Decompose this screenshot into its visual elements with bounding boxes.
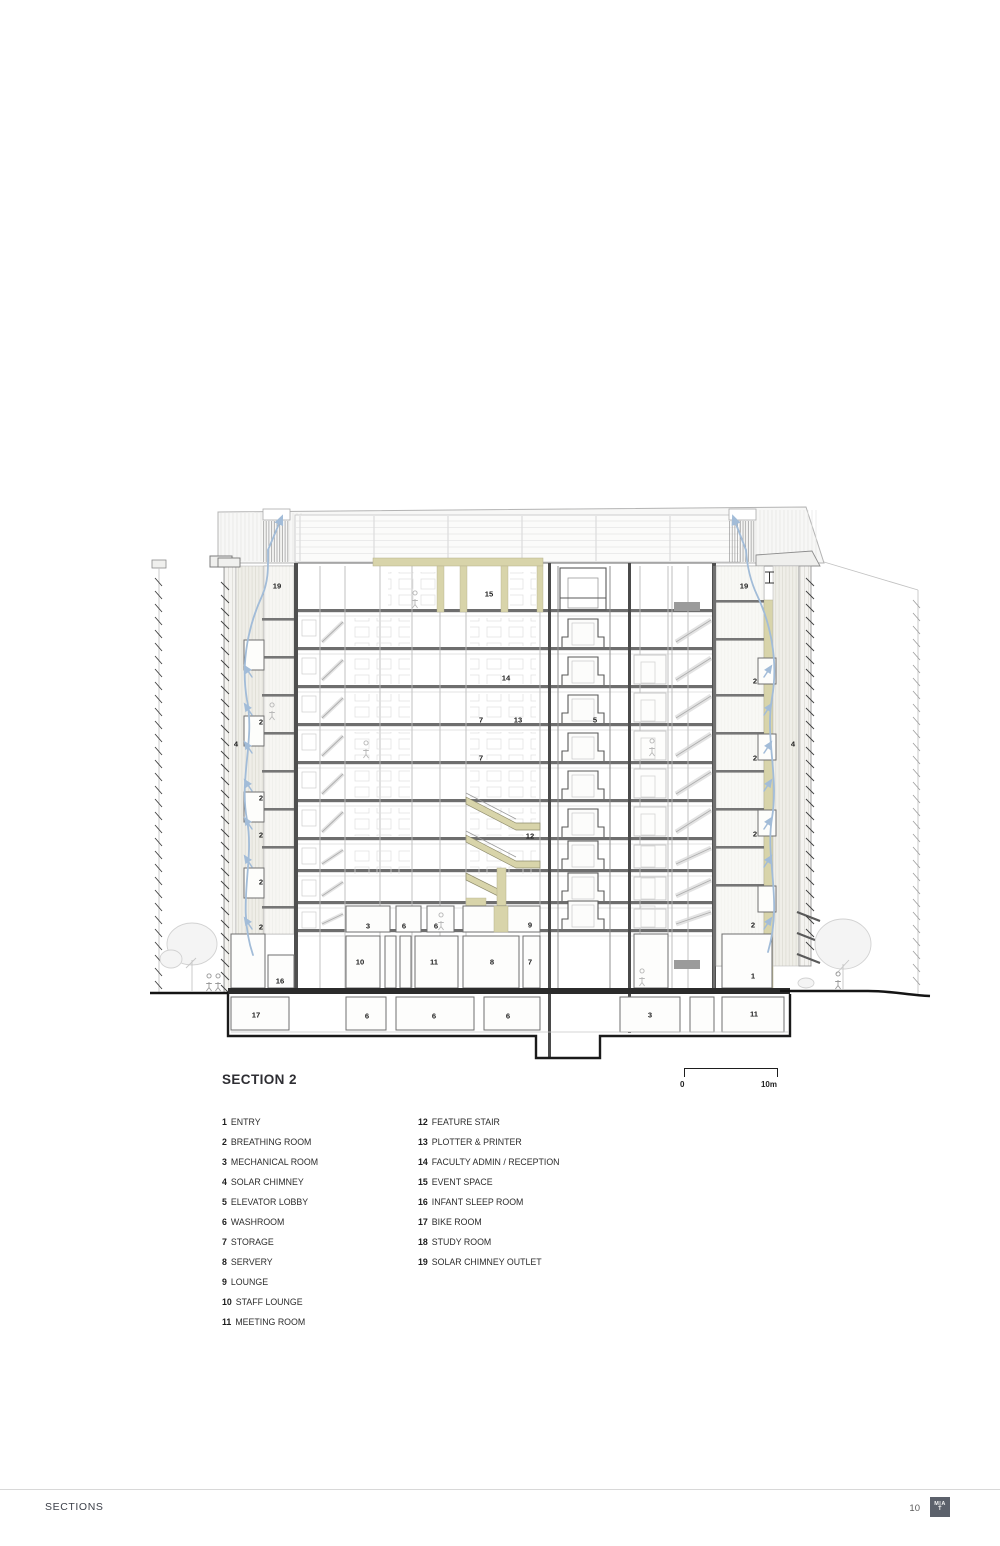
legend-item-number: 15 — [418, 1177, 428, 1187]
legend-item-label: WASHROOM — [231, 1217, 284, 1227]
legend-item-label: STORAGE — [231, 1237, 274, 1247]
legend-item: 12FEATURE STAIR — [418, 1112, 560, 1132]
room-label: 14 — [502, 674, 511, 683]
firm-logo: M|A T — [930, 1497, 950, 1517]
room-label: 7 — [528, 958, 532, 967]
legend-item-label: EVENT SPACE — [432, 1177, 493, 1187]
legend-item: 18STUDY ROOM — [418, 1232, 560, 1252]
solar-chimney-right — [712, 563, 820, 993]
room-label: 6 — [402, 922, 406, 931]
legend-item: 10STAFF LOUNGE — [222, 1292, 318, 1312]
legend-item: 13PLOTTER & PRINTER — [418, 1132, 560, 1152]
legend-item-number: 19 — [418, 1257, 428, 1267]
room-label: 17 — [252, 1011, 260, 1020]
room-label: 10 — [356, 958, 364, 967]
room-label: 6 — [506, 1012, 510, 1021]
legend-item-label: FEATURE STAIR — [432, 1117, 500, 1127]
legend-item: 1ENTRY — [222, 1112, 318, 1132]
room-label: 11 — [750, 1010, 759, 1019]
scale-end-label: 10m — [761, 1080, 777, 1089]
legend-item: 11MEETING ROOM — [222, 1312, 318, 1332]
room-label: 12 — [526, 832, 534, 841]
legend-item-label: MEETING ROOM — [235, 1317, 305, 1327]
legend-item-number: 11 — [222, 1317, 231, 1327]
legend-item: 17BIKE ROOM — [418, 1212, 560, 1232]
legend-item-label: INFANT SLEEP ROOM — [432, 1197, 524, 1207]
legend-item-number: 6 — [222, 1217, 227, 1227]
legend-item-number: 14 — [418, 1157, 428, 1167]
chimney-outlet-left — [263, 509, 290, 520]
legend-item-number: 7 — [222, 1237, 227, 1247]
room-label: 9 — [528, 921, 532, 930]
room-label: 2 — [259, 923, 263, 932]
roof — [210, 507, 918, 590]
footer-divider — [0, 1489, 1000, 1490]
room-label: 2 — [753, 830, 757, 839]
scale-bar — [684, 1068, 778, 1077]
room-label: 3 — [366, 922, 370, 931]
legend-item-label: MECHANICAL ROOM — [231, 1157, 318, 1167]
legend-item: 8SERVERY — [222, 1252, 318, 1272]
legend-item: 2BREATHING ROOM — [222, 1132, 318, 1152]
room-label: 3 — [648, 1011, 652, 1020]
room-label: 6 — [365, 1012, 369, 1021]
room-label: 6 — [434, 922, 438, 931]
legend-item-label: ENTRY — [231, 1117, 261, 1127]
legend-item-label: BIKE ROOM — [432, 1217, 482, 1227]
legend-item-number: 10 — [222, 1297, 232, 1307]
room-label: 19 — [740, 582, 748, 591]
room-label: 2 — [259, 718, 263, 727]
legend-item-number: 9 — [222, 1277, 227, 1287]
chimney-outlet-right — [729, 509, 756, 520]
legend-item: 6WASHROOM — [222, 1212, 318, 1232]
legend-item-number: 8 — [222, 1257, 227, 1267]
room-label: 15 — [485, 590, 494, 599]
legend-item: 7STORAGE — [222, 1232, 318, 1252]
legend-item-number: 13 — [418, 1137, 428, 1147]
room-label: 19 — [273, 582, 281, 591]
legend-item-label: LOUNGE — [231, 1277, 268, 1287]
legend-item-number: 17 — [418, 1217, 428, 1227]
footer-section-label: SECTIONS — [45, 1501, 103, 1513]
legend-item: 3MECHANICAL ROOM — [222, 1152, 318, 1172]
tree-left — [160, 923, 217, 992]
clerestory — [295, 515, 740, 562]
legend-item-label: SOLAR CHIMNEY — [231, 1177, 304, 1187]
legend-item-number: 18 — [418, 1237, 428, 1247]
room-label: 2 — [259, 878, 263, 887]
room-label: 2 — [753, 677, 757, 686]
room-label: 11 — [430, 958, 439, 967]
legend-item-label: SOLAR CHIMNEY OUTLET — [432, 1257, 542, 1267]
room-label: 2 — [259, 794, 263, 803]
legend-item: 16INFANT SLEEP ROOM — [418, 1192, 560, 1212]
legend-item: 19SOLAR CHIMNEY OUTLET — [418, 1252, 560, 1272]
legend-item-label: PLOTTER & PRINTER — [432, 1137, 522, 1147]
legend-item-label: SERVERY — [231, 1257, 273, 1267]
section-drawing: 1919151427135244722122222366921011871161… — [0, 0, 1000, 1070]
legend-item-number: 12 — [418, 1117, 428, 1127]
legend-item-number: 1 — [222, 1117, 227, 1127]
scale-start-label: 0 — [680, 1080, 684, 1089]
legend-item-label: ELEVATOR LOBBY — [231, 1197, 308, 1207]
legend-item: 15EVENT SPACE — [418, 1172, 560, 1192]
room-label: 6 — [432, 1012, 436, 1021]
legend-item-number: 2 — [222, 1137, 227, 1147]
legend-item-label: STAFF LOUNGE — [236, 1297, 303, 1307]
legend-column-2: 12FEATURE STAIR 13PLOTTER & PRINTER 14FA… — [418, 1112, 560, 1272]
page-number: 10 — [886, 1503, 920, 1514]
legend-item: 14FACULTY ADMIN / RECEPTION — [418, 1152, 560, 1172]
legend-item-label: STUDY ROOM — [432, 1237, 491, 1247]
drawing-title: SECTION 2 — [222, 1072, 297, 1087]
room-label: 2 — [751, 921, 755, 930]
room-label: 7 — [479, 716, 483, 725]
legend-item: 5ELEVATOR LOBBY — [222, 1192, 318, 1212]
legend-item-number: 16 — [418, 1197, 428, 1207]
legend-column-1: 1ENTRY 2BREATHING ROOM 3MECHANICAL ROOM … — [222, 1112, 318, 1332]
legend-item: 9LOUNGE — [222, 1272, 318, 1292]
firm-logo-line2: T — [938, 1507, 942, 1513]
document-page: 1919151427135244722122222366921011871161… — [0, 0, 1000, 1546]
legend-item-label: BREATHING ROOM — [231, 1137, 311, 1147]
room-label: 16 — [276, 977, 284, 986]
legend-item-number: 5 — [222, 1197, 227, 1207]
room-label: 2 — [753, 754, 757, 763]
legend-item-number: 3 — [222, 1157, 227, 1167]
room-label: 7 — [479, 754, 483, 763]
room-label: 8 — [490, 958, 494, 967]
legend-item: 4SOLAR CHIMNEY — [222, 1172, 318, 1192]
beam-symbol — [765, 572, 774, 583]
room-label: 13 — [514, 716, 522, 725]
legend-item-number: 4 — [222, 1177, 227, 1187]
room-label: 2 — [259, 831, 263, 840]
legend-item-label: FACULTY ADMIN / RECEPTION — [432, 1157, 560, 1167]
